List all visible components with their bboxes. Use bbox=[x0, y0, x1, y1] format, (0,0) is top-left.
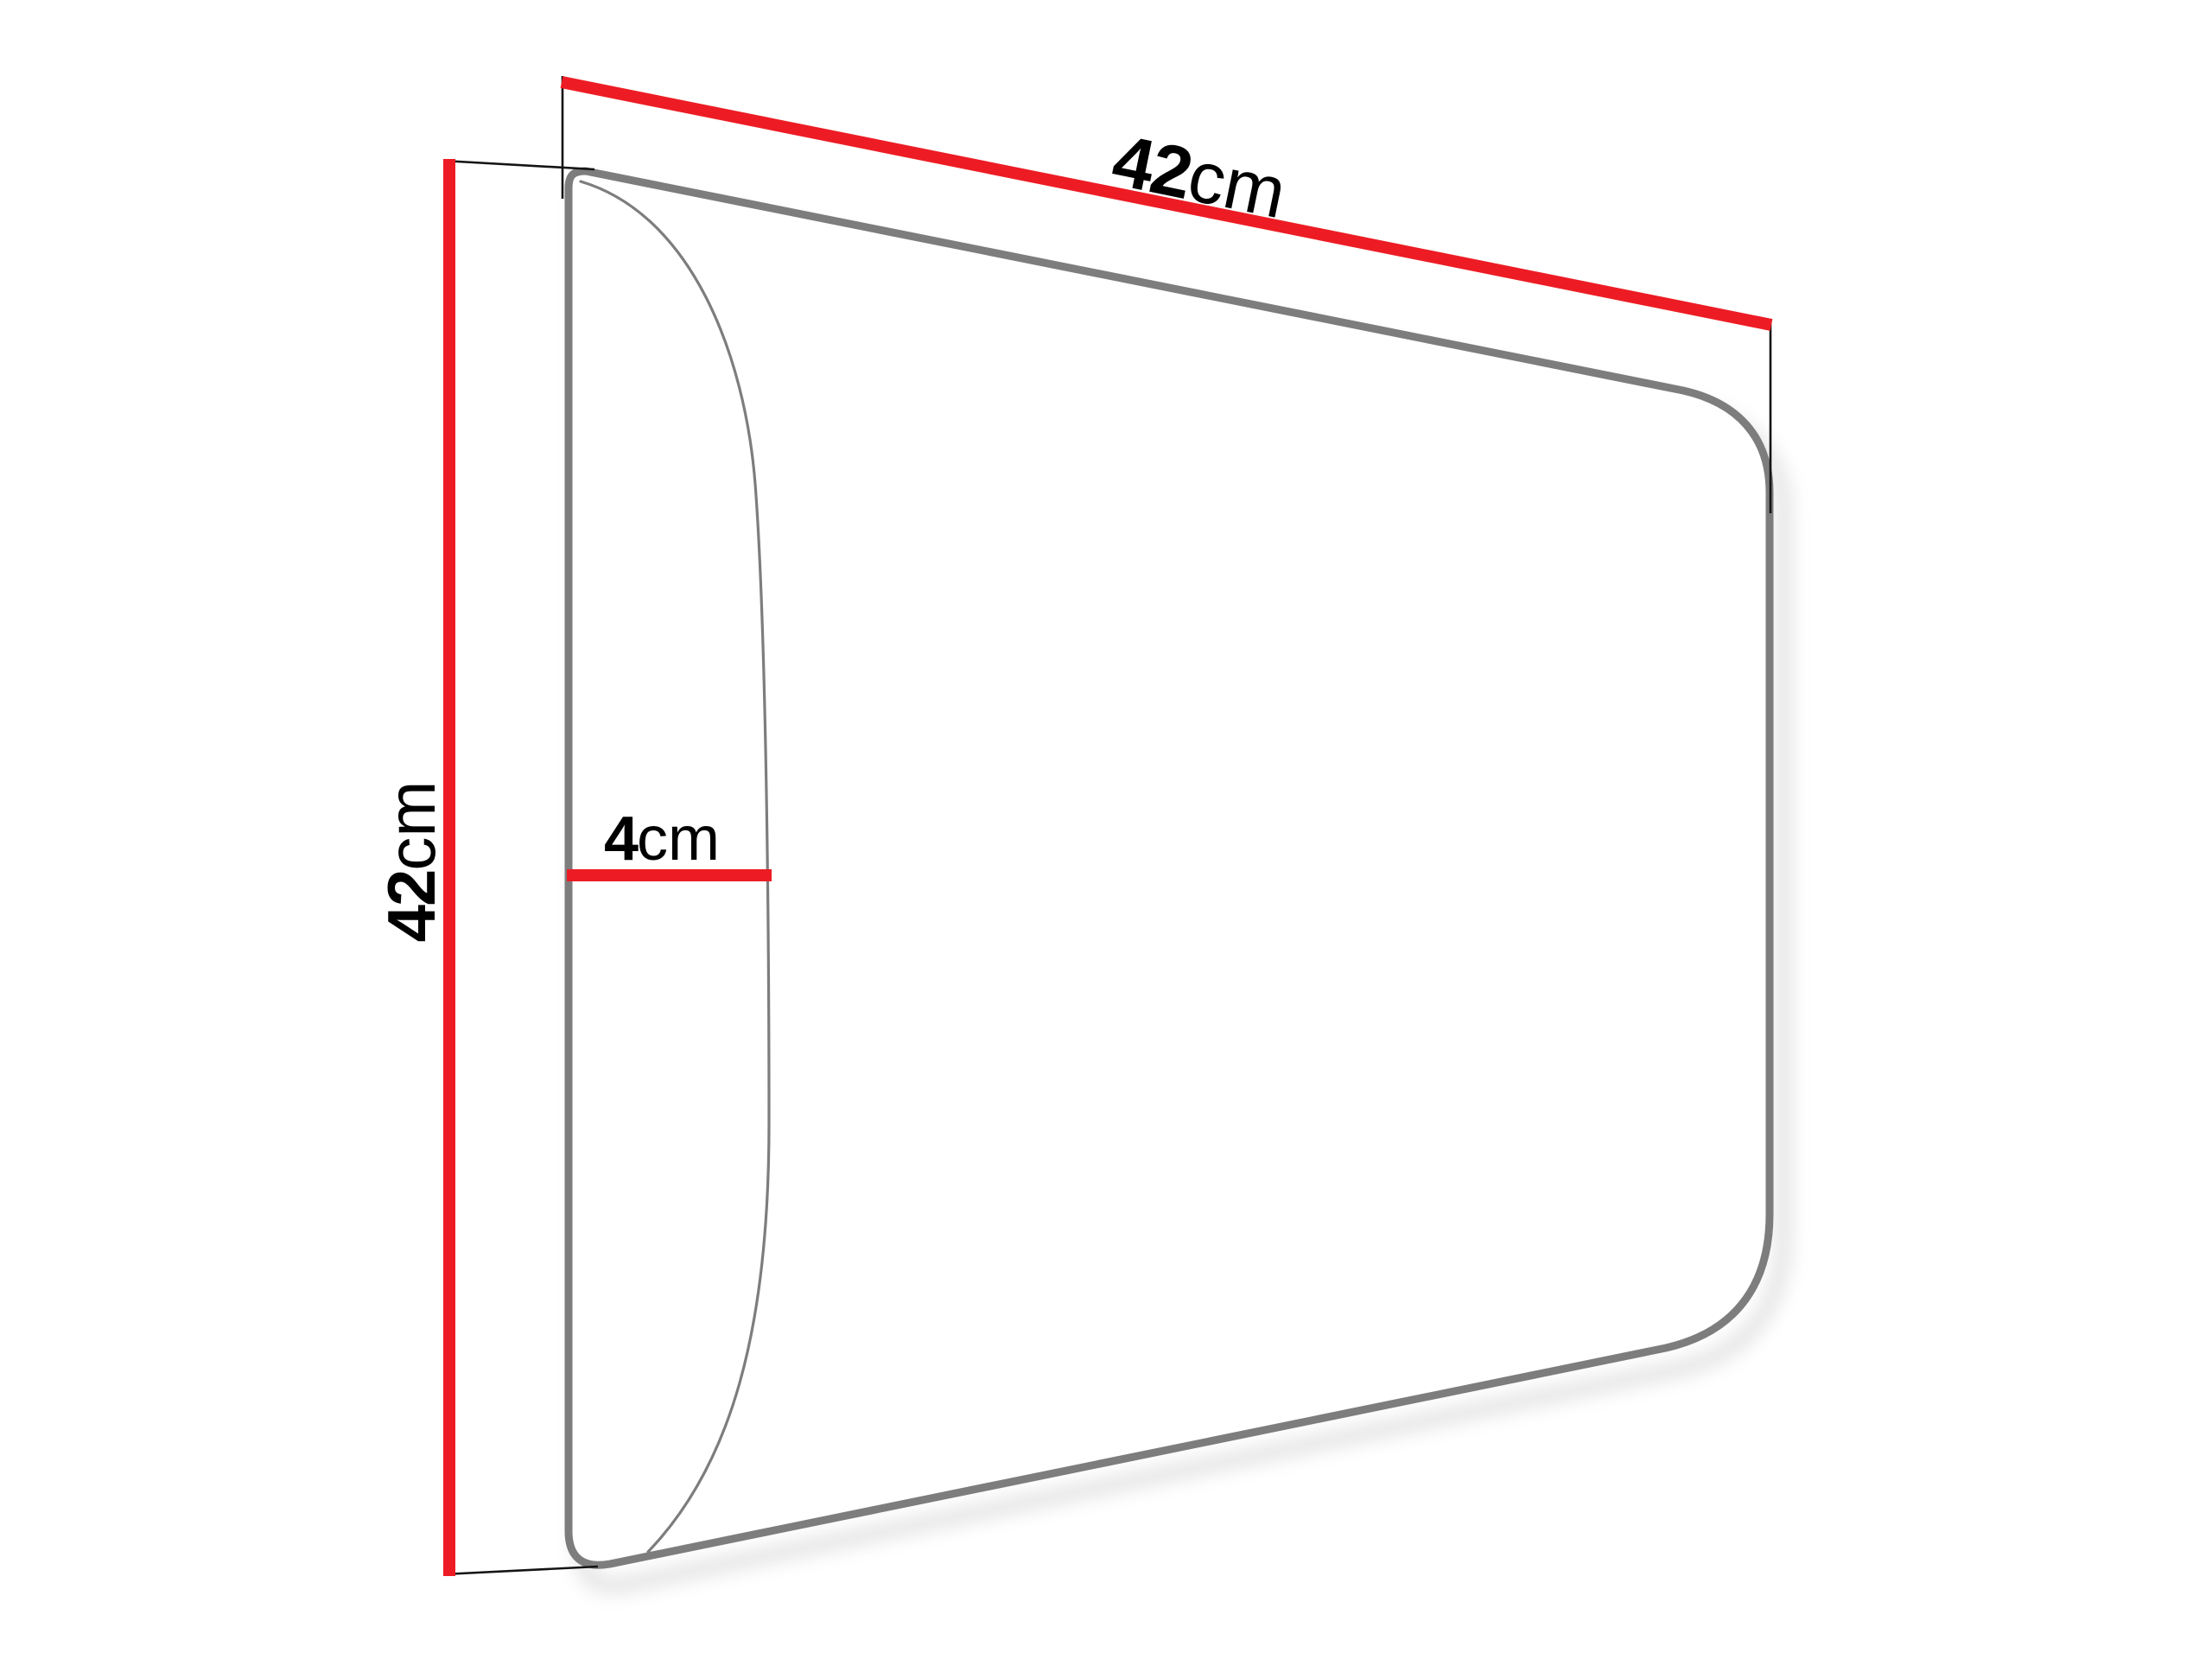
extension-line-bottom-left-horizontal bbox=[443, 1567, 598, 1574]
height-label: 42cm bbox=[378, 781, 445, 943]
depth-label: 4cm bbox=[604, 808, 720, 870]
height-unit: cm bbox=[373, 781, 449, 871]
height-value: 42 bbox=[373, 871, 449, 943]
depth-value: 4 bbox=[604, 804, 637, 874]
depth-unit: cm bbox=[637, 804, 720, 874]
diagram-canvas: 42cm 42cm 4cm bbox=[0, 0, 2212, 1659]
panel-drawing bbox=[0, 0, 2212, 1659]
extension-line-top-left-horizontal bbox=[443, 161, 594, 169]
panel-outline bbox=[569, 171, 1770, 1565]
